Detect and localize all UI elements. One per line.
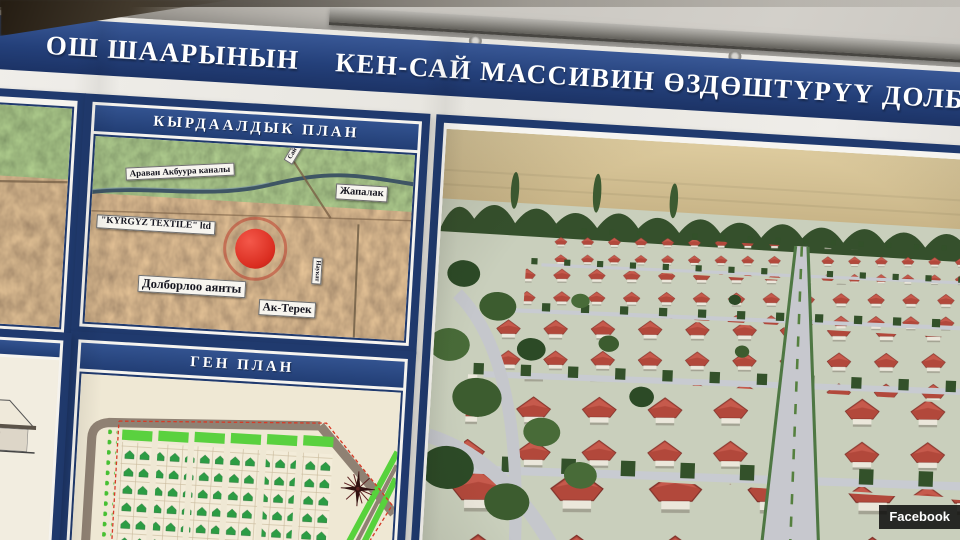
satellite-map-image: Араван Акбуура каналы Сай жолу Жапалак "… (82, 134, 417, 343)
watermark-label: Facebook (879, 505, 960, 529)
map-label-zhapalak: Жапалак (335, 184, 388, 202)
genplan-panel: ГЕН ПЛАН (52, 331, 417, 540)
project-title-main: КЕН-САЙ МАССИВИН ӨЗДӨШТҮРҮҮ ДОЛБООРУ. (335, 47, 960, 120)
render-3d-image (414, 129, 960, 540)
house-panel-band (0, 334, 60, 357)
map-label-ak-terek: Ак-Терек (258, 299, 316, 319)
render-3d-svg (414, 129, 960, 540)
render-3d-panel (402, 114, 960, 540)
project-title-city: ОШ ШААРЫНЫН (45, 29, 300, 75)
map-label-naukat-road: Наукат (311, 257, 323, 285)
billboard-photo: ОШ ШААРЫНЫН КЕН-САЙ МАССИВИН ӨЗДӨШТҮРҮҮ … (0, 0, 960, 540)
genplan-svg (65, 374, 401, 540)
house-panel-body: УУ УЙ 150 м2 Площадь 4,30 4,03 (0, 351, 59, 540)
edge-satellite-svg (0, 99, 72, 327)
house-type-title: УУ УЙ 150 м2 (0, 361, 59, 385)
genplan-drawing (63, 372, 403, 540)
edge-satellite-image (0, 97, 74, 329)
banner: ОШ ШААРЫНЫН КЕН-САЙ МАССИВИН ӨЗДӨШТҮРҮҮ … (0, 6, 960, 540)
project-site-marker-dot (234, 227, 276, 269)
situational-plan-panel: КЫРДААЛДЫК ПЛАН (71, 93, 431, 354)
house-elevation-drawing (0, 384, 38, 456)
house-type-panel: УУ УЙ 150 м2 Площадь 4,30 4,03 (0, 322, 72, 540)
